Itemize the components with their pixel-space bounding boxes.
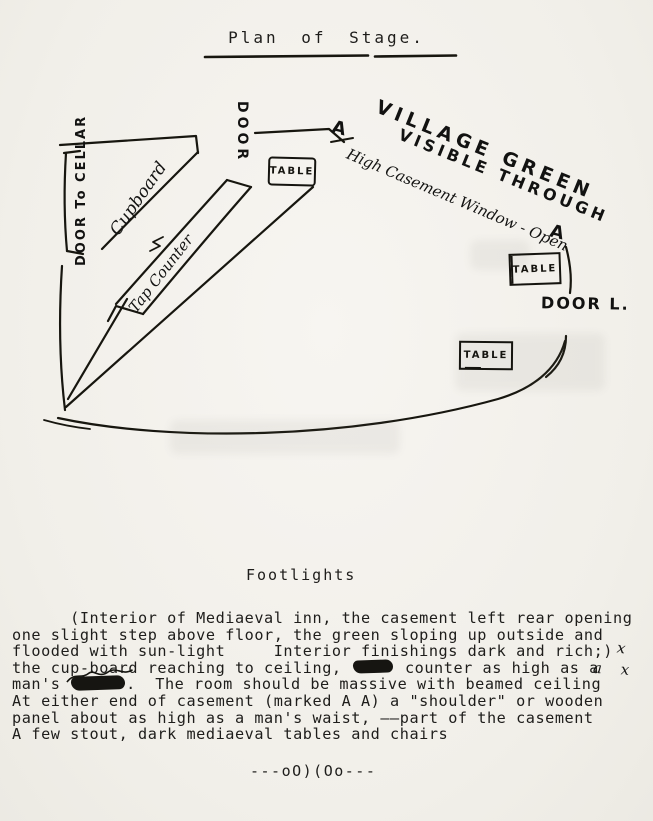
table-box-upstage: TABLE xyxy=(268,156,317,186)
table-box-right: TABLE xyxy=(508,252,561,286)
footlights-label: Footlights xyxy=(246,566,356,584)
paragraph-line: At either end of casement (marked A A) a… xyxy=(12,693,652,710)
margin-mark-ax: a x xyxy=(593,659,637,679)
table-label: TABLE xyxy=(464,350,509,361)
cupboard-label: Cupboard xyxy=(106,158,171,239)
paragraph-line: panel about as high as a man's waist, ——… xyxy=(12,710,652,727)
table-underdash xyxy=(465,367,481,369)
tap-counter-label: Tap Counter xyxy=(125,231,197,316)
door-to-cellar-label: DOOR To CELLAR xyxy=(74,115,89,266)
page-title: Plan of Stage. xyxy=(0,28,653,47)
bleed-through-smudge xyxy=(170,420,400,454)
table-label: TABLE xyxy=(513,263,558,276)
casement-marker-a-left: A xyxy=(330,117,349,141)
stage-directions-paragraph: (Interior of Mediaeval inn, the casement… xyxy=(12,610,652,743)
paragraph-line: the cup-board reaching to ceiling, count… xyxy=(12,660,652,677)
paragraph-line: one slight step above floor, the green s… xyxy=(12,627,652,644)
paragraph-line: (Interior of Mediaeval inn, the casement… xyxy=(12,610,652,627)
door-top-label: DOOR xyxy=(234,101,250,163)
ink-blot xyxy=(353,660,393,674)
scanned-page: Plan of Stage. DOOR DOOR To CELLAR Cupbo… xyxy=(0,0,653,821)
ink-blot-with-scrawl xyxy=(71,675,125,691)
paragraph-line: flooded with sun-light Interior finishin… xyxy=(12,643,652,660)
table-box-downstage: TABLE xyxy=(459,341,513,370)
paragraph-line: man's . The room should be massive with … xyxy=(12,676,652,693)
door-left-label: DOOR L. xyxy=(541,293,630,314)
paragraph-line: A few stout, dark mediaeval tables and c… xyxy=(12,726,652,743)
section-end-ornament: ---oO)(Oo--- xyxy=(250,762,376,780)
table-label: TABLE xyxy=(270,165,315,177)
